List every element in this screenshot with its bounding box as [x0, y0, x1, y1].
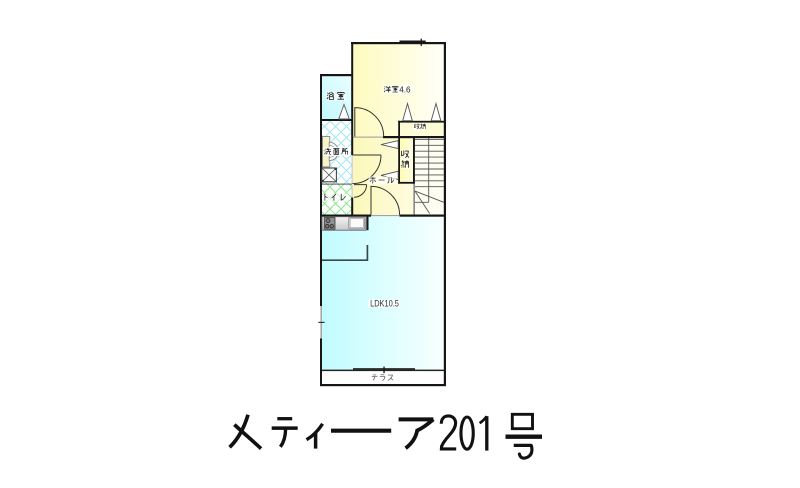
svg-text:4.6: 4.6: [399, 84, 411, 94]
svg-text:LDK10.5: LDK10.5: [370, 299, 399, 309]
